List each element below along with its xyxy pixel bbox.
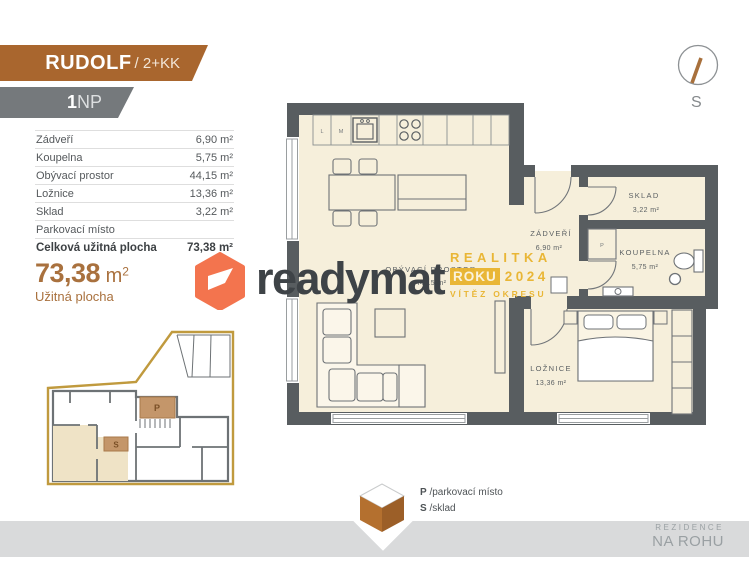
unit-title-banner: RUDOLF / 2+KK bbox=[0, 45, 208, 81]
dishwasher-label: M bbox=[339, 129, 344, 135]
site-garage-hatch bbox=[140, 419, 170, 428]
room-label: Celková užitná plocha bbox=[36, 242, 157, 254]
bedroom-label: LOŽNICE bbox=[530, 364, 572, 373]
table-row: Koupelna 5,75 m² bbox=[35, 149, 234, 167]
floor-suffix: NP bbox=[77, 92, 102, 113]
room-label: Parkovací místo bbox=[36, 224, 115, 236]
brand-logo-icon bbox=[193, 252, 247, 310]
award-line2: ROKU 2024 bbox=[450, 268, 552, 285]
legend-key: P bbox=[420, 487, 427, 498]
room-label: Obývací prostor bbox=[36, 170, 114, 182]
site-parking-letter: P bbox=[154, 403, 160, 413]
brand-name: readymat bbox=[256, 253, 444, 305]
table-row: Sklad 3,22 m² bbox=[35, 203, 234, 221]
storage-label: SKLAD bbox=[628, 191, 659, 200]
site-plan: P S bbox=[40, 325, 240, 497]
legend-label: /sklad bbox=[429, 503, 455, 514]
award-badge: REALITKA ROKU 2024 VÍTĚZ OKRESU bbox=[450, 250, 552, 299]
total-area-exponent: 2 bbox=[122, 265, 129, 279]
room-label: Sklad bbox=[36, 206, 64, 218]
project-line1: REZIDENCE bbox=[652, 523, 724, 532]
legend-key: S bbox=[420, 503, 427, 514]
unit-layout: / 2+KK bbox=[135, 55, 180, 72]
legend-building-icon bbox=[352, 481, 412, 535]
award-word: ROKU bbox=[450, 268, 500, 285]
room-value: 5,75 m² bbox=[196, 152, 233, 164]
legend-item: S /sklad bbox=[420, 501, 503, 517]
award-line3: VÍTĚZ OKRESU bbox=[450, 289, 552, 299]
washer-closet-label: P bbox=[600, 243, 604, 249]
bathroom-area: 5,75 m² bbox=[632, 264, 659, 271]
brand-watermark: readymat bbox=[193, 252, 444, 310]
room-label: Zádveří bbox=[36, 134, 73, 146]
table-row: Obývací prostor 44,15 m² bbox=[35, 167, 234, 185]
compass-needle-icon bbox=[692, 58, 701, 83]
room-area-table: Zádveří 6,90 m² Koupelna 5,75 m² Obývací… bbox=[35, 130, 234, 256]
storage-area: 3,22 m² bbox=[633, 207, 660, 214]
unit-name: RUDOLF bbox=[45, 52, 131, 75]
legend-label: /parkovací místo bbox=[429, 487, 502, 498]
total-area: 73,38 m2 Užitná plocha bbox=[35, 260, 129, 303]
room-value: 13,36 m² bbox=[190, 188, 233, 200]
total-area-value: 73,38 bbox=[35, 258, 100, 288]
total-area-caption: Užitná plocha bbox=[35, 290, 129, 303]
washer-icon bbox=[670, 274, 681, 285]
floor-banner: 1 NP bbox=[0, 87, 134, 118]
legend: P /parkovací místo S /sklad bbox=[420, 485, 503, 517]
bathroom-label: KOUPELNA bbox=[619, 248, 670, 257]
room-value: 6,90 m² bbox=[196, 134, 233, 146]
room-label: Ložnice bbox=[36, 188, 74, 200]
table-row: Zádveří 6,90 m² bbox=[35, 131, 234, 149]
entry-label: ZÁDVEŘÍ bbox=[530, 229, 572, 238]
project-line2: NA ROHU bbox=[652, 533, 724, 550]
table-row: Ložnice 13,36 m² bbox=[35, 185, 234, 203]
room-value: 3,22 m² bbox=[196, 206, 233, 218]
site-storage-letter: S bbox=[113, 441, 119, 450]
toilet-icon bbox=[674, 253, 694, 269]
legend-item: P /parkovací místo bbox=[420, 485, 503, 501]
floor-number: 1 bbox=[67, 92, 77, 113]
award-line1: REALITKA bbox=[450, 250, 552, 265]
floorplan-page: RUDOLF / 2+KK 1 NP S Zádveří 6,90 m² Kou… bbox=[0, 0, 749, 562]
room-label: Koupelna bbox=[36, 152, 83, 164]
bedroom-area: 13,36 m² bbox=[536, 380, 567, 387]
total-area-unit: m bbox=[100, 265, 122, 287]
table-row: Parkovací místo bbox=[35, 221, 234, 239]
fridge-label: L bbox=[320, 129, 323, 135]
room-value: 44,15 m² bbox=[190, 170, 233, 182]
award-year: 2024 bbox=[505, 269, 549, 284]
project-name: REZIDENCE NA ROHU bbox=[652, 523, 724, 550]
